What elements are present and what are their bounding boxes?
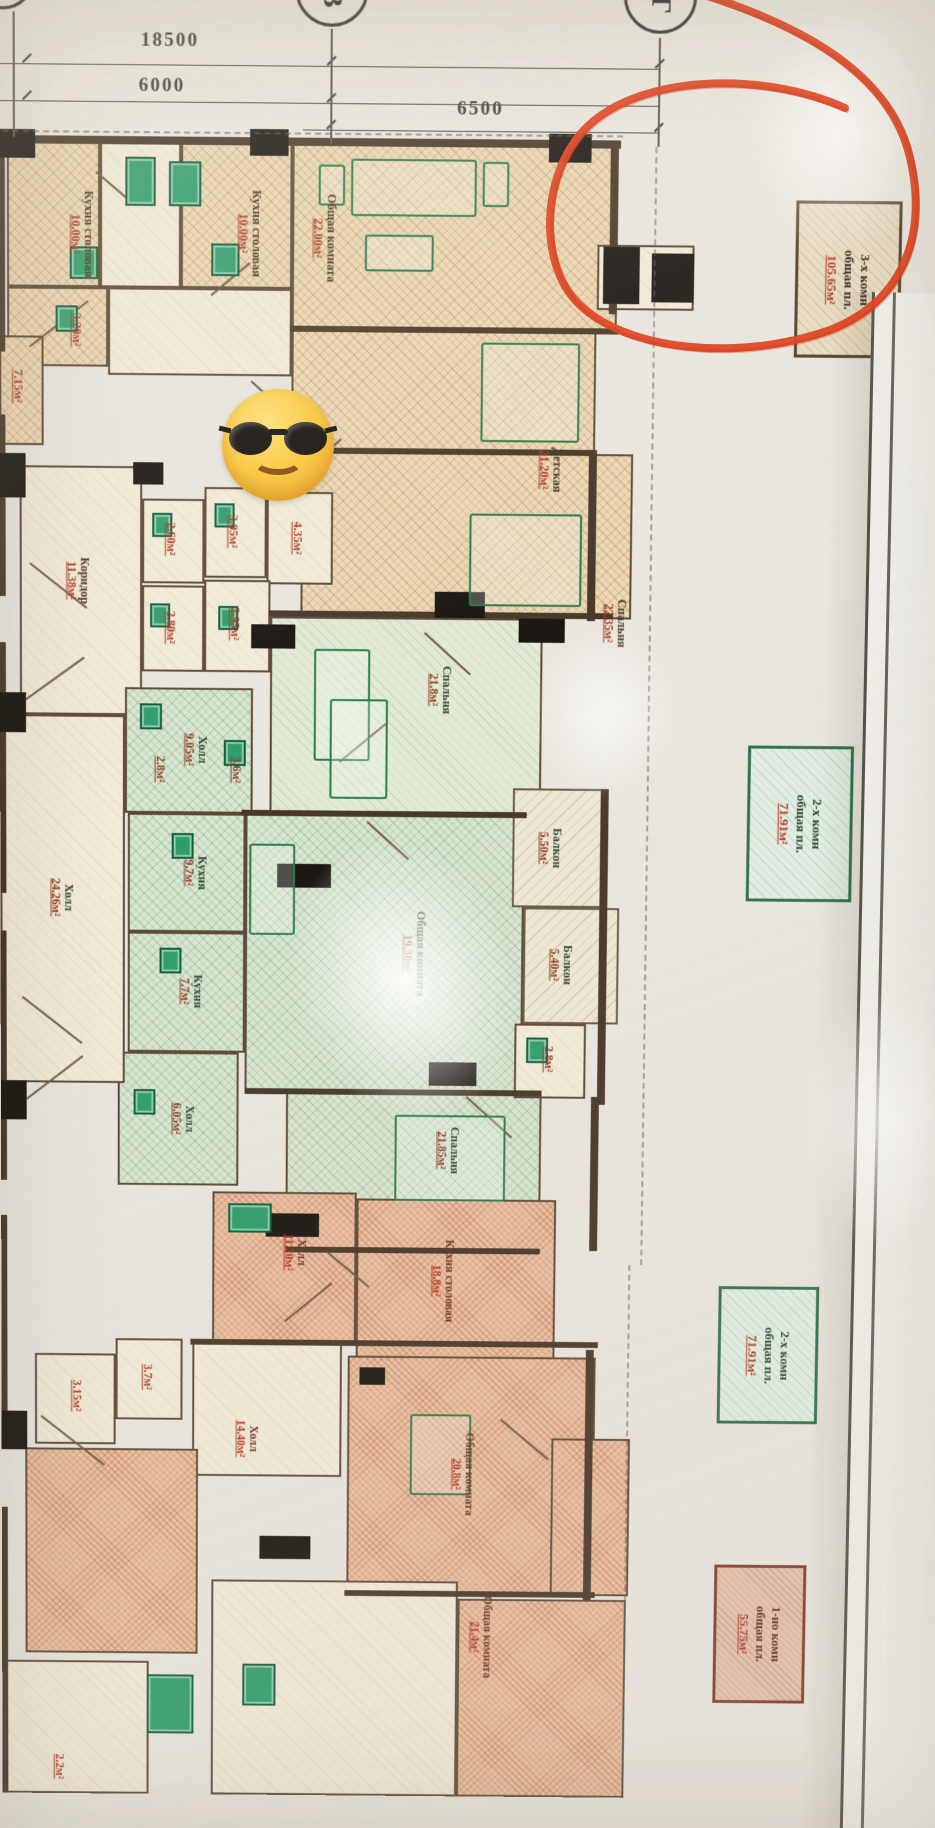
wall	[0, 414, 6, 596]
room-region	[25, 1447, 198, 1653]
grid-axis-bubble: Г	[623, 0, 697, 34]
room-area-value: 3.20м²	[69, 313, 83, 346]
room-label: Общая комната22.00м²	[311, 194, 339, 282]
column-pad	[1, 1080, 27, 1119]
wall	[1, 1215, 7, 1413]
axis-stem	[13, 12, 15, 138]
room-area-value: 5.50м²	[537, 832, 551, 865]
column-pad	[0, 129, 35, 158]
grid-axis-bubble: В	[295, 0, 369, 27]
room-name: Коридор	[78, 557, 91, 604]
room-name: Холл	[62, 884, 75, 911]
grid-axis-label: Г	[644, 0, 677, 14]
room-name: Общая комната	[480, 1596, 494, 1678]
furniture-outline	[483, 162, 510, 207]
room-label: 2.95м²	[227, 608, 241, 641]
room-area-value: 11.38м²	[64, 561, 77, 599]
room-area-value: 9.05м²	[182, 733, 195, 766]
room-label: Детская21.20м²	[537, 447, 565, 492]
room-name: Холл	[196, 736, 209, 764]
room-region	[108, 287, 292, 376]
room-label: Кухня столовая10.00м²	[236, 190, 264, 277]
room-area-value: 11.20м²	[282, 1234, 295, 1271]
room-label: 3.7м²	[140, 1364, 153, 1390]
emoji-smile-icon	[252, 445, 304, 475]
room-area-value: 18.8м²	[430, 1265, 444, 1297]
furniture-outline	[329, 699, 388, 799]
axis-dashed-line	[640, 147, 657, 1265]
column-pad	[651, 253, 694, 302]
column-pad	[603, 247, 640, 304]
room-name: Общая комната	[462, 1433, 476, 1516]
room-label: 2.60м²	[164, 523, 178, 556]
room-area-value: 10.00м²	[236, 214, 250, 254]
furniture-outline	[480, 343, 580, 443]
room-area-value: 19.30м²	[400, 935, 414, 973]
room-area-value: 3.6м²	[229, 757, 243, 784]
room-region	[269, 616, 542, 816]
room-area-value: 20.8м²	[449, 1458, 462, 1490]
furniture-outline	[365, 234, 434, 271]
room-label: 2.80м²	[163, 611, 177, 644]
room-label: 3.20м²	[69, 313, 83, 346]
room-area-value: 6.05м²	[170, 1103, 183, 1135]
room-label: 3.6м²	[229, 757, 243, 784]
column-pad	[359, 1367, 385, 1385]
sunglasses-emoji-sticker	[222, 389, 334, 501]
grid-axis-bubble	[0, 0, 35, 10]
room-label: Кухня столовая10.00м²	[68, 190, 95, 277]
room-name: Детская	[550, 447, 564, 492]
room-name: Общая комната	[414, 911, 428, 996]
column-pad	[133, 462, 163, 484]
room-area-value: 7.15м²	[11, 370, 25, 403]
fixture-icon	[147, 1674, 194, 1733]
wall	[0, 642, 6, 893]
apartment-total-area: 55.75м²	[736, 1614, 751, 1654]
fixture-icon	[242, 1664, 275, 1706]
room-name: Спальня	[440, 666, 454, 714]
room-area-value: 7.7м²	[178, 978, 191, 1004]
room-area-value: 24.26м²	[49, 878, 62, 916]
room-name: Кухня столовая	[82, 191, 96, 278]
room-area-value: 2.95м²	[227, 608, 241, 641]
room-area-value: 2.8м²	[541, 1046, 555, 1072]
dimension-tick	[22, 90, 32, 100]
room-area-value: 22.35м²	[601, 604, 615, 643]
furniture-outline	[469, 514, 582, 608]
room-area-value: 3.15м²	[70, 1380, 83, 1412]
room-label: 2.8м²	[153, 756, 166, 783]
room-area-value: 2.60м²	[164, 523, 178, 556]
room-label: Кухня7.7м²	[178, 975, 205, 1009]
apartment-summary-box: 1-но комнобщая пл.55.75м²	[712, 1565, 806, 1704]
room-name: Балкон	[561, 945, 575, 985]
room-name: Спальня	[615, 599, 629, 647]
room-area-value: 4.35м²	[290, 522, 304, 555]
room-name: Кухня столовая	[250, 190, 264, 277]
axis-stem	[658, 38, 662, 147]
room-label: Спальня21.85м²	[434, 1127, 461, 1174]
column-pad	[259, 1536, 310, 1559]
room-area-value: 2.80м²	[163, 611, 177, 644]
axis-stem	[330, 29, 333, 144]
room-label: Коридор11.38м²	[64, 557, 91, 604]
room-name: Холл	[247, 1425, 260, 1452]
column-pad	[2, 1411, 28, 1450]
apartment-type: 2-х комн	[776, 1331, 791, 1380]
room-label: Общая комната20.8м²	[449, 1433, 476, 1516]
room-label: Кухня столовая18.8м²	[429, 1239, 456, 1322]
room-label: 7.15м²	[11, 370, 25, 403]
room-label: 3.15м²	[70, 1380, 83, 1412]
room-label: Общая комната19.30м²	[400, 911, 427, 996]
room-label: Общая комната21.4м²	[467, 1596, 494, 1678]
room-area-value: 21.8м²	[426, 673, 440, 706]
room-label: Холл6.05м²	[170, 1103, 197, 1135]
room-label: 3.05м²	[226, 515, 240, 548]
room-label: Холл11.20м²	[282, 1234, 309, 1271]
grid-axis-label: В	[316, 0, 349, 8]
furniture-outline	[351, 159, 477, 217]
fixture-icon	[160, 948, 182, 974]
room-area-value: 5.40м²	[547, 949, 561, 981]
room-label: Холл24.26м²	[49, 878, 76, 917]
fixture-icon	[140, 703, 162, 729]
room-area-value: 21.85м²	[435, 1131, 449, 1169]
dimension-text: 6000	[139, 75, 261, 101]
fixture-icon	[134, 1089, 156, 1115]
apartment-caption: общая пл.	[760, 1327, 775, 1384]
dimension-text: 6500	[457, 98, 579, 124]
apartment-total-area: 71.91м²	[776, 803, 791, 845]
room-name: Балкон	[550, 828, 564, 868]
room-name: Спальня	[448, 1127, 462, 1174]
room-name: Кухня	[191, 975, 204, 1008]
room-label: Спальня21.8м²	[426, 666, 453, 714]
room-area-value: 3.05м²	[226, 515, 240, 548]
room-label: 4.35м²	[290, 522, 304, 555]
apartment-caption: общая пл.	[752, 1606, 767, 1662]
room-area-value: 2.8м²	[153, 756, 166, 783]
room-label: Балкон5.50м²	[537, 828, 564, 868]
column-pad	[519, 619, 565, 643]
room-area-value: 2.2м²	[52, 1754, 65, 1779]
room-name: Кухня	[196, 856, 209, 890]
room-area-value: 3.7м²	[140, 1364, 153, 1390]
column-pad	[0, 453, 26, 498]
dimension-text: 18500	[141, 29, 263, 55]
column-pad	[251, 624, 295, 648]
floor-plan-photo: 1850060006500ВГКухня столовая10.00м²Кухн…	[0, 0, 935, 1828]
apartment-total-area: 71.91м²	[744, 1335, 759, 1376]
room-area-value: 21.4м²	[468, 1621, 481, 1652]
room-name: Холл	[295, 1239, 308, 1266]
dimension-tick	[22, 53, 32, 63]
room-area-value: 22.00м²	[311, 218, 325, 258]
room-label: Холл9.05м²	[182, 733, 209, 766]
room-region	[2, 1660, 148, 1794]
room-label: Балкон5.40м²	[547, 945, 574, 985]
room-label: 2.8м²	[541, 1046, 555, 1072]
room-name: Кухня столовая	[443, 1240, 457, 1323]
column-pad	[429, 1062, 477, 1086]
wall	[1, 930, 8, 1179]
room-label: Кухня9.7м²	[182, 856, 209, 890]
fixture-icon	[125, 157, 155, 206]
fixture-icon	[169, 161, 202, 206]
column-pad	[549, 134, 592, 163]
fixture-icon	[228, 1203, 272, 1233]
room-area-value: 9.7м²	[182, 859, 195, 886]
room-name: Холл	[183, 1105, 196, 1132]
sunglasses-bridge-icon	[268, 429, 288, 435]
apartment-summary-box: 2-х комнобщая пл.71.91м²	[717, 1286, 820, 1424]
floor-plan-sheet: 1850060006500ВГКухня столовая10.00м²Кухн…	[0, 0, 935, 1800]
room-area-value: 10.00м²	[68, 214, 82, 254]
apartment-type: 1-но комн	[768, 1607, 783, 1662]
room-label: 2.2м²	[52, 1754, 65, 1779]
paper-fold-edge	[836, 292, 935, 1828]
furniture-outline	[249, 844, 295, 935]
room-name: Общая комната	[324, 194, 338, 282]
column-pad	[0, 692, 26, 732]
room-area-value: 14.40м²	[234, 1420, 247, 1457]
room-label: Холл14.40м²	[234, 1420, 261, 1458]
room-region	[192, 1343, 342, 1477]
wall	[589, 1097, 599, 1251]
room-area-value: 21.20м²	[537, 450, 551, 489]
wall	[0, 135, 5, 352]
room-label: Спальня22.35м²	[601, 599, 629, 648]
wall	[2, 1507, 9, 1793]
apartment-caption: общая пл.	[792, 795, 807, 853]
